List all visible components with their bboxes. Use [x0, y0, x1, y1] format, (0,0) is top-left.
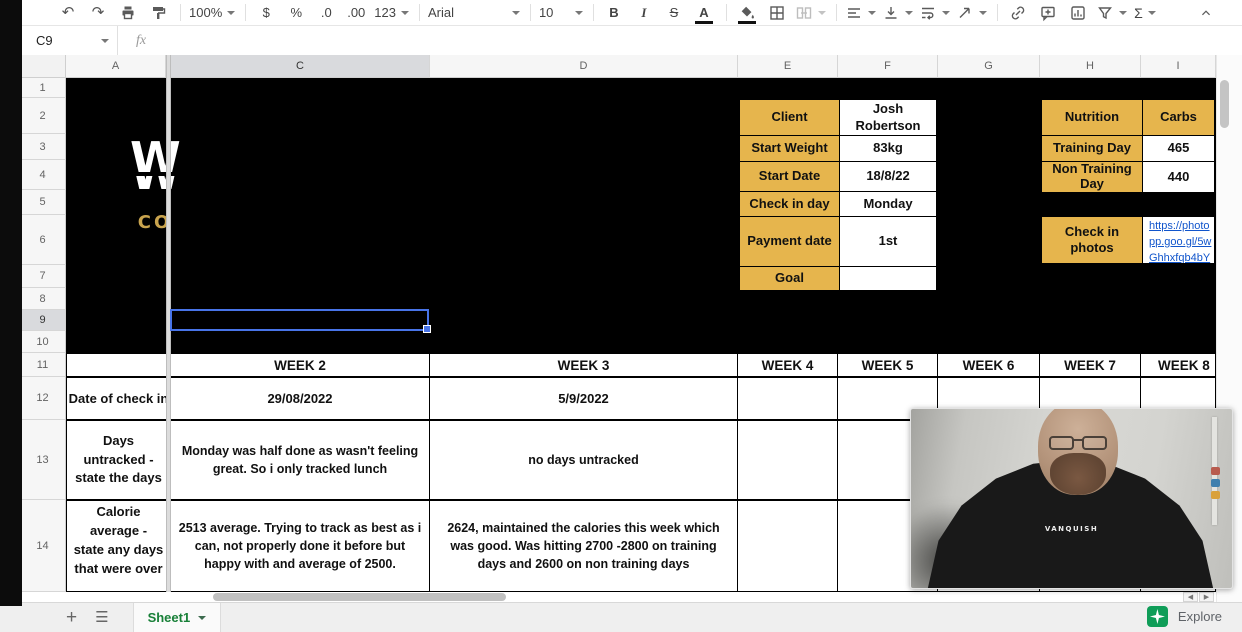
- date-week3-cell[interactable]: 5/9/2022: [430, 377, 738, 420]
- all-sheets-button[interactable]: ☰: [95, 610, 108, 625]
- screen-edge-strip: [0, 0, 22, 606]
- toolbar-separator: [726, 4, 727, 21]
- toolbar-separator: [245, 4, 246, 21]
- person-glasses: [1047, 436, 1109, 452]
- bold-button[interactable]: B: [602, 2, 626, 24]
- nutrition-table: Nutrition Carbs Training Day 465 Non Tra…: [1040, 98, 1216, 194]
- toolbar-separator: [180, 4, 181, 21]
- row-header-14[interactable]: 14: [20, 500, 66, 592]
- check-in-photos-link-cell[interactable]: https://photo pp.goo.gl/5w Ghhxfqb4bY: [1143, 217, 1214, 263]
- brand-logo: W W CO: [128, 140, 182, 242]
- table-row: Goal: [740, 267, 936, 290]
- lanyard-bead: [1211, 467, 1220, 475]
- decrease-decimals-button[interactable]: .0: [314, 2, 338, 24]
- logo-w-bottom: W: [130, 176, 180, 208]
- insert-link-button[interactable]: [1006, 2, 1030, 24]
- toolbar-separator: [419, 4, 420, 21]
- row-header-7[interactable]: 7: [20, 265, 66, 288]
- calories-row-label-cell[interactable]: Calorie average - state any days that we…: [66, 500, 171, 592]
- week-2-header-cell[interactable]: WEEK 2: [171, 353, 430, 377]
- table-row: Start Weight 83kg: [740, 136, 936, 162]
- row-header-4[interactable]: 4: [20, 160, 66, 190]
- redo-button[interactable]: ↷: [86, 2, 110, 24]
- comment-icon: [1039, 4, 1057, 22]
- spreadsheet-app: ↶ ↷ 100% $ % .0 .00 123 Arial 10 B I S A: [0, 0, 1242, 632]
- person-beard: [1050, 453, 1106, 495]
- non-training-day-value-cell[interactable]: 440: [1143, 162, 1214, 192]
- week-3-header-cell[interactable]: WEEK 3: [430, 353, 738, 377]
- arrow-right-icon: ▶: [1204, 594, 1209, 601]
- align-left-icon: [845, 4, 863, 22]
- photos-link[interactable]: Ghhxfqb4bY: [1149, 251, 1210, 263]
- table-row: Start Date 18/8/22: [740, 162, 936, 192]
- payment-date-value-cell[interactable]: 1st: [840, 217, 936, 267]
- functions-button[interactable]: Σ: [1133, 2, 1157, 24]
- week-7-header-cell[interactable]: WEEK 7: [1040, 353, 1141, 377]
- borders-button[interactable]: [765, 2, 789, 24]
- week-4-header-cell[interactable]: WEEK 4: [738, 353, 838, 377]
- glasses-lens: [1082, 436, 1107, 450]
- row-header-11[interactable]: 11: [20, 353, 66, 377]
- check-in-day-value-cell[interactable]: Monday: [840, 192, 936, 217]
- lanyard-bead: [1211, 479, 1220, 487]
- client-label-cell[interactable]: Client: [740, 100, 840, 136]
- row-header-12[interactable]: 12: [20, 377, 66, 420]
- chevron-down-icon: [905, 11, 913, 15]
- glasses-lens: [1049, 436, 1074, 450]
- redo-icon: ↷: [92, 5, 105, 20]
- toolbar-separator: [530, 4, 531, 21]
- row-header-13[interactable]: 13: [20, 420, 66, 500]
- start-weight-label-cell[interactable]: Start Weight: [740, 136, 840, 162]
- formula-bar: C9 fx: [0, 26, 1242, 56]
- hide-toolbar-button[interactable]: [1194, 2, 1218, 24]
- untracked-row-label-cell[interactable]: Days untracked - state the days: [66, 420, 171, 500]
- start-weight-value-cell[interactable]: 83kg: [840, 136, 936, 162]
- week-6-header-cell[interactable]: WEEK 6: [938, 353, 1040, 377]
- chevron-down-icon: [575, 11, 583, 15]
- carbs-header-cell[interactable]: Carbs: [1143, 100, 1214, 136]
- borders-icon: [768, 4, 786, 22]
- selected-cell-c9[interactable]: [170, 309, 429, 331]
- check-in-photos-label-cell[interactable]: Check in photos: [1042, 217, 1143, 263]
- fill-color-swatch: [738, 21, 756, 24]
- chevron-up-icon: [1198, 5, 1214, 21]
- explore-label: Explore: [1178, 609, 1222, 624]
- training-day-label-cell[interactable]: Training Day: [1042, 136, 1143, 162]
- printer-icon: [119, 4, 137, 22]
- chevron-down-icon: [101, 39, 109, 43]
- explore-button[interactable]: Explore: [1147, 606, 1222, 627]
- font-family-select[interactable]: Arial: [428, 2, 520, 24]
- untracked-week2-cell[interactable]: Monday was half done as wasn't feeling g…: [171, 420, 430, 500]
- chevron-down-icon: [979, 11, 987, 15]
- horizontal-align-button[interactable]: [845, 2, 876, 24]
- toolbar: ↶ ↷ 100% $ % .0 .00 123 Arial 10 B I S A: [0, 0, 1242, 26]
- column-header-d[interactable]: D: [430, 55, 738, 78]
- sheet-tab[interactable]: Sheet1: [133, 603, 222, 632]
- photos-link[interactable]: https://photo: [1149, 219, 1210, 235]
- explore-icon: [1147, 606, 1168, 627]
- lanyard-bead: [1211, 491, 1220, 499]
- merge-cells-button[interactable]: [795, 2, 826, 24]
- paint-roller-icon: [149, 4, 167, 22]
- table-row: Training Day 465: [1042, 136, 1214, 162]
- increase-decimals-button[interactable]: .00: [344, 2, 368, 24]
- italic-button[interactable]: I: [632, 2, 656, 24]
- name-box[interactable]: C9: [22, 26, 118, 55]
- goal-label-cell[interactable]: Goal: [740, 267, 840, 290]
- table-row: Payment date 1st: [740, 217, 936, 267]
- column-header-h[interactable]: H: [1040, 55, 1141, 78]
- row-header-8[interactable]: 8: [20, 288, 66, 310]
- plus-icon: +: [66, 607, 77, 628]
- link-icon: [1009, 4, 1027, 22]
- table-row: Check in photos https://photo pp.goo.gl/…: [1042, 217, 1214, 263]
- active-cell-reference: C9: [36, 33, 53, 48]
- chevron-down-icon: [227, 11, 235, 15]
- text-color-swatch: [695, 21, 713, 24]
- scroll-left-button[interactable]: ◀: [1183, 592, 1198, 602]
- row-header-5[interactable]: 5: [20, 190, 66, 215]
- vertical-scrollbar-thumb[interactable]: [1220, 80, 1229, 128]
- column-header-e[interactable]: E: [738, 55, 838, 78]
- filter-button[interactable]: [1096, 2, 1127, 24]
- more-formats-button[interactable]: 123: [374, 2, 409, 24]
- arrow-left-icon: ◀: [1188, 594, 1193, 601]
- start-date-value-cell[interactable]: 18/8/22: [840, 162, 936, 192]
- undo-button[interactable]: ↶: [56, 2, 80, 24]
- font-size-select[interactable]: 10: [539, 2, 583, 24]
- chevron-down-icon: [1148, 11, 1156, 15]
- week-header-row: WEEK 2 WEEK 3 WEEK 4 WEEK 5 WEEK 6 WEEK …: [66, 353, 1216, 377]
- add-sheet-button[interactable]: +: [66, 608, 77, 627]
- check-in-day-label-cell[interactable]: Check in day: [740, 192, 840, 217]
- logo-w-top: W: [130, 140, 180, 172]
- vertical-align-button[interactable]: [882, 2, 913, 24]
- training-day-value-cell[interactable]: 465: [1143, 136, 1214, 162]
- date-week2-cell[interactable]: 29/08/2022: [171, 377, 430, 420]
- insert-chart-button[interactable]: [1066, 2, 1090, 24]
- calories-week2-cell[interactable]: 2513 average. Trying to track as best as…: [171, 500, 430, 592]
- undo-icon: ↶: [62, 5, 75, 20]
- fill-handle[interactable]: [423, 325, 431, 333]
- calories-week4-cell[interactable]: [738, 500, 838, 592]
- table-row: Non Training Day 440: [1042, 162, 1214, 192]
- start-date-label-cell[interactable]: Start Date: [740, 162, 840, 192]
- select-all-corner[interactable]: [20, 55, 66, 78]
- toolbar-separator: [997, 4, 998, 21]
- text-color-button[interactable]: A: [692, 2, 716, 24]
- chevron-down-icon: [198, 616, 206, 620]
- webcam-overlay: VANQUISH: [910, 408, 1233, 589]
- text-wrap-button[interactable]: [919, 2, 950, 24]
- untracked-week3-cell[interactable]: no days untracked: [430, 420, 738, 500]
- strikethrough-button[interactable]: S: [662, 2, 686, 24]
- column-header-a[interactable]: A: [66, 55, 166, 78]
- format-currency-button[interactable]: $: [254, 2, 278, 24]
- row-header-10[interactable]: 10: [20, 331, 66, 353]
- paint-format-button[interactable]: [146, 2, 170, 24]
- row-header-3[interactable]: 3: [20, 134, 66, 160]
- merge-cells-icon: [795, 4, 813, 22]
- column-header-c[interactable]: C: [171, 55, 430, 78]
- row-header-9[interactable]: 9: [20, 310, 66, 331]
- zoom-select[interactable]: 100%: [189, 2, 235, 24]
- row-header-6[interactable]: 6: [20, 215, 66, 265]
- untracked-week4-cell[interactable]: [738, 420, 838, 500]
- chevron-down-icon: [868, 11, 876, 15]
- column-header-g[interactable]: G: [938, 55, 1040, 78]
- week-5-header-cell[interactable]: WEEK 5: [838, 353, 938, 377]
- sheet-tab-label: Sheet1: [148, 610, 191, 625]
- week-8-header-cell[interactable]: WEEK 8: [1141, 353, 1216, 377]
- text-rotation-icon: [956, 4, 974, 22]
- row-header-1[interactable]: 1: [20, 78, 66, 98]
- goal-value-cell[interactable]: [840, 267, 936, 290]
- client-value-cell[interactable]: Josh Robertson: [840, 100, 936, 136]
- calories-week3-cell[interactable]: 2624, maintained the calories this week …: [430, 500, 738, 592]
- text-rotation-button[interactable]: [956, 2, 987, 24]
- table-row: Client Josh Robertson: [740, 100, 936, 136]
- check-in-photos-table: Check in photos https://photo pp.goo.gl/…: [1040, 215, 1216, 265]
- horizontal-scrollbar-thumb[interactable]: [213, 593, 506, 601]
- date-row-label-cell[interactable]: Date of check in: [66, 377, 171, 420]
- fx-label: fx: [136, 33, 146, 49]
- formula-input[interactable]: [146, 26, 1242, 55]
- chart-icon: [1069, 4, 1087, 22]
- payment-date-label-cell[interactable]: Payment date: [740, 217, 840, 267]
- fill-bucket-icon: [738, 5, 756, 21]
- format-percent-button[interactable]: %: [284, 2, 308, 24]
- date-week4-cell[interactable]: [738, 377, 838, 420]
- chevron-down-icon: [942, 11, 950, 15]
- shirt-brand-text: VANQUISH: [1045, 525, 1098, 533]
- column-header-f[interactable]: F: [838, 55, 938, 78]
- chevron-down-icon: [401, 11, 409, 15]
- chevron-down-icon: [512, 11, 520, 15]
- toolbar-separator: [836, 4, 837, 21]
- sheet-tab-bar: + ☰ Sheet1 Explore: [0, 602, 1242, 632]
- print-button[interactable]: [116, 2, 140, 24]
- text-wrap-icon: [919, 4, 937, 22]
- insert-comment-button[interactable]: [1036, 2, 1060, 24]
- photos-link[interactable]: pp.goo.gl/5w: [1149, 235, 1211, 251]
- filter-icon: [1096, 4, 1114, 22]
- scroll-right-button[interactable]: ▶: [1199, 592, 1214, 602]
- menu-icon: ☰: [95, 609, 108, 626]
- row-header-2[interactable]: 2: [20, 98, 66, 134]
- chevron-down-icon: [1119, 11, 1127, 15]
- toolbar-separator: [593, 4, 594, 21]
- non-training-day-label-cell[interactable]: Non Training Day: [1042, 162, 1143, 192]
- align-bottom-icon: [882, 4, 900, 22]
- horizontal-scrollbar[interactable]: ◀ ▶: [20, 592, 1216, 602]
- chevron-down-icon: [818, 11, 826, 15]
- nutrition-header-cell[interactable]: Nutrition: [1042, 100, 1143, 136]
- week-row-label-cell[interactable]: [66, 353, 171, 377]
- client-info-table: Client Josh Robertson Start Weight 83kg …: [738, 98, 938, 292]
- table-row: Check in day Monday: [740, 192, 936, 217]
- column-header-i[interactable]: I: [1141, 55, 1216, 78]
- table-row: Nutrition Carbs: [1042, 100, 1214, 136]
- fill-color-button[interactable]: [735, 2, 759, 24]
